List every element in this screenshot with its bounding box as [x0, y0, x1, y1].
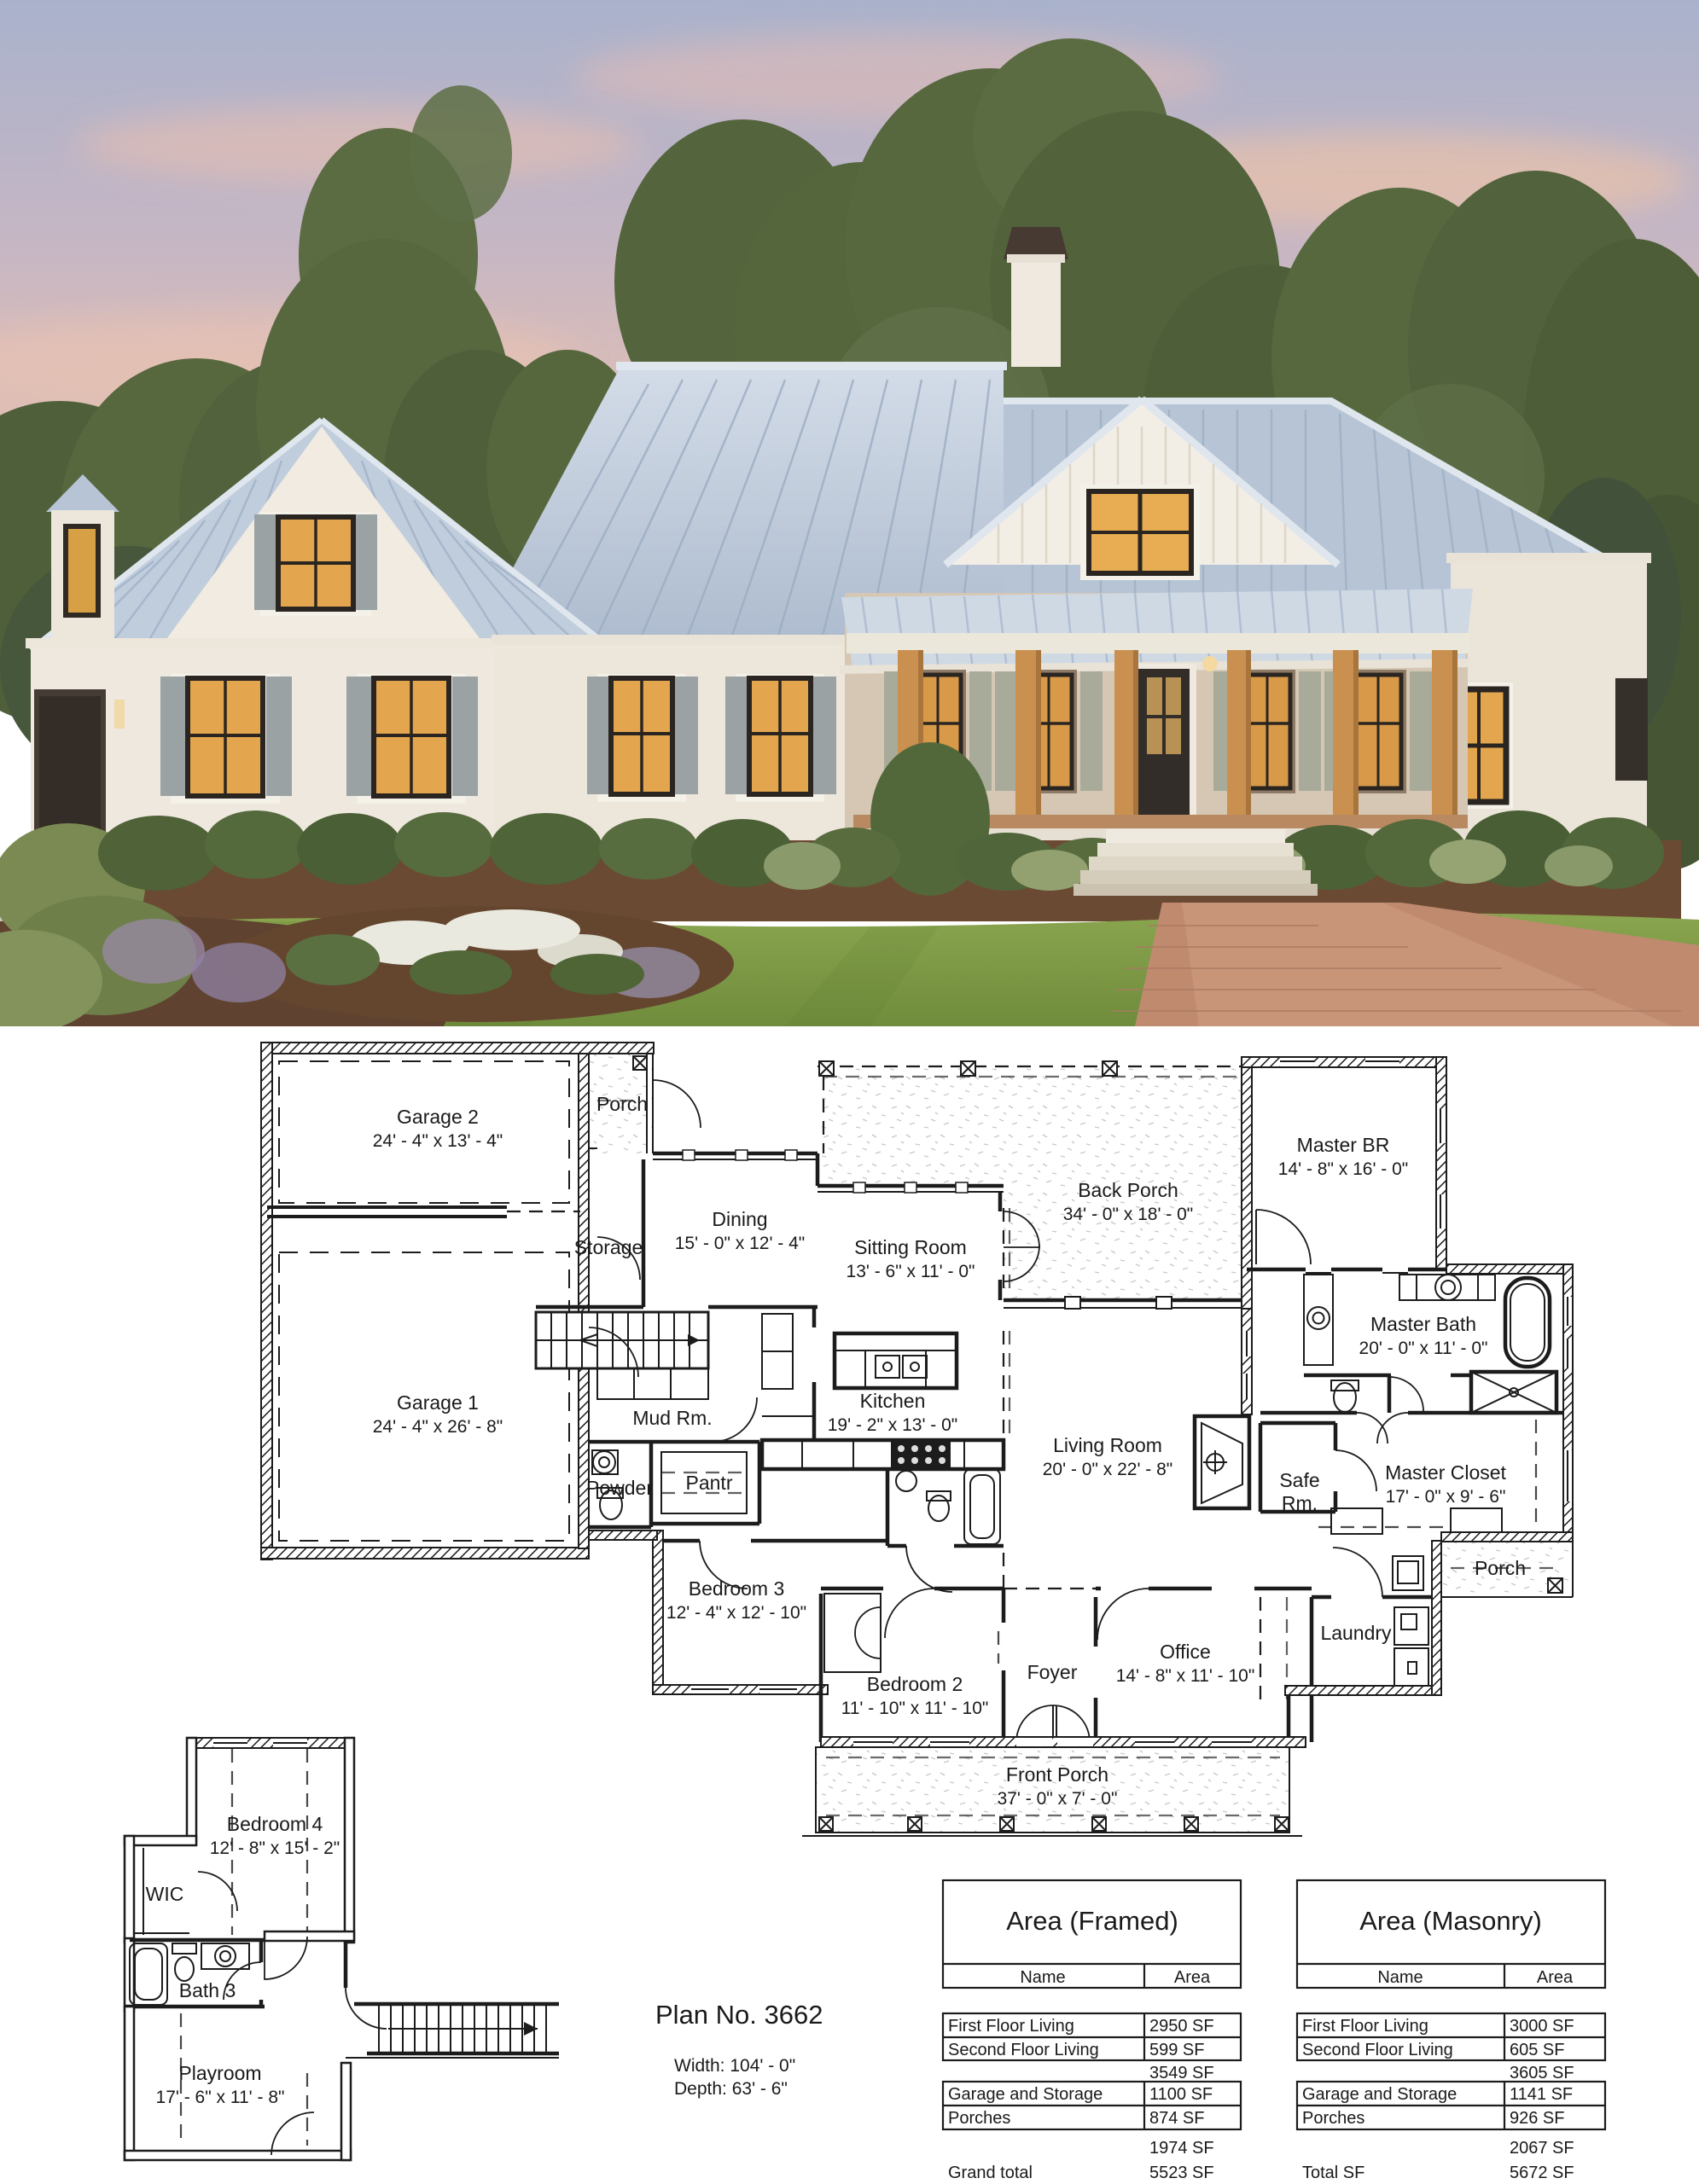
svg-text:Back Porch: Back Porch — [1078, 1179, 1178, 1201]
svg-text:24' - 4" x 26' - 8": 24' - 4" x 26' - 8" — [373, 1417, 503, 1437]
svg-text:15' - 0" x 12' - 4": 15' - 0" x 12' - 4" — [675, 1234, 806, 1253]
svg-text:1974 SF: 1974 SF — [1149, 2139, 1214, 2158]
svg-text:Bedroom 2: Bedroom 2 — [867, 1673, 963, 1695]
svg-text:Area: Area — [1174, 1968, 1211, 1987]
svg-text:Front Porch: Front Porch — [1006, 1763, 1108, 1786]
svg-text:Bedroom 4: Bedroom 4 — [227, 1813, 323, 1835]
svg-text:Kitchen: Kitchen — [860, 1390, 926, 1412]
svg-text:Master Closet: Master Closet — [1385, 1461, 1506, 1484]
svg-text:Mud Rm.: Mud Rm. — [632, 1407, 712, 1429]
svg-text:13' - 6" x 11' - 0": 13' - 6" x 11' - 0" — [847, 1262, 975, 1281]
svg-text:Second Floor Living: Second Floor Living — [948, 2041, 1099, 2059]
svg-text:17' - 6" x 11' - 8": 17' - 6" x 11' - 8" — [156, 2088, 285, 2107]
svg-text:34' - 0" x 18' - 0": 34' - 0" x 18' - 0" — [1063, 1205, 1194, 1224]
svg-text:Second Floor Living: Second Floor Living — [1302, 2041, 1453, 2059]
svg-text:Garage 1: Garage 1 — [397, 1391, 479, 1414]
svg-text:Plan No. 3662: Plan No. 3662 — [655, 2000, 823, 2030]
svg-text:14' - 8" x 16' - 0": 14' - 8" x 16' - 0" — [1278, 1159, 1409, 1179]
svg-text:Playroom: Playroom — [178, 2062, 261, 2084]
svg-text:Area (Framed): Area (Framed) — [1006, 1906, 1178, 1936]
svg-text:Garage and Storage: Garage and Storage — [1302, 2085, 1457, 2104]
svg-text:First Floor Living: First Floor Living — [948, 2017, 1074, 2036]
svg-text:17' - 0" x 9' - 6": 17' - 0" x 9' - 6" — [1386, 1487, 1506, 1507]
svg-text:5523 SF: 5523 SF — [1149, 2164, 1214, 2182]
svg-text:Garage 2: Garage 2 — [397, 1106, 479, 1128]
svg-text:12' - 8" x 15' - 2": 12' - 8" x 15' - 2" — [210, 1838, 340, 1858]
svg-text:Laundry: Laundry — [1320, 1622, 1392, 1644]
svg-text:Master BR: Master BR — [1297, 1134, 1390, 1156]
svg-text:Porches: Porches — [948, 2109, 1010, 2128]
svg-text:Rm.: Rm. — [1282, 1492, 1318, 1514]
svg-text:874 SF: 874 SF — [1149, 2109, 1204, 2128]
svg-text:Area: Area — [1537, 1968, 1574, 1987]
svg-text:12' - 4" x 12' - 10": 12' - 4" x 12' - 10" — [666, 1603, 806, 1623]
svg-text:Master Bath: Master Bath — [1370, 1313, 1476, 1335]
svg-text:1141 SF: 1141 SF — [1510, 2085, 1573, 2104]
svg-text:Garage and Storage: Garage and Storage — [948, 2085, 1103, 2104]
svg-text:11' - 10" x 11' - 10": 11' - 10" x 11' - 10" — [841, 1699, 989, 1718]
svg-text:37' - 0" x 7' - 0": 37' - 0" x 7' - 0" — [998, 1789, 1118, 1809]
svg-text:2950 SF: 2950 SF — [1149, 2017, 1214, 2036]
svg-text:3549 SF: 3549 SF — [1149, 2064, 1214, 2082]
svg-text:605 SF: 605 SF — [1510, 2041, 1564, 2059]
svg-text:Foyer: Foyer — [1027, 1661, 1078, 1683]
svg-text:Porches: Porches — [1302, 2109, 1364, 2128]
svg-text:19' - 2" x 13' - 0": 19' - 2" x 13' - 0" — [828, 1415, 958, 1435]
svg-text:Area (Masonry): Area (Masonry) — [1359, 1906, 1542, 1936]
svg-text:First Floor Living: First Floor Living — [1302, 2017, 1428, 2036]
svg-text:Porch: Porch — [596, 1093, 648, 1115]
svg-text:5672 SF: 5672 SF — [1510, 2164, 1574, 2182]
svg-text:3000 SF: 3000 SF — [1510, 2017, 1574, 2036]
svg-text:926 SF: 926 SF — [1510, 2109, 1564, 2128]
svg-text:Powder: Powder — [586, 1477, 653, 1499]
svg-text:2067 SF: 2067 SF — [1510, 2139, 1574, 2158]
svg-text:Total SF: Total SF — [1302, 2164, 1364, 2182]
svg-text:WIC: WIC — [146, 1883, 184, 1905]
svg-text:599 SF: 599 SF — [1149, 2041, 1204, 2059]
svg-text:20' - 0" x 11' - 0": 20' - 0" x 11' - 0" — [1359, 1339, 1488, 1358]
svg-text:Safe: Safe — [1279, 1469, 1319, 1491]
svg-text:24' - 4" x 13' - 4": 24' - 4" x 13' - 4" — [373, 1131, 503, 1151]
svg-text:20' - 0" x 22' - 8": 20' - 0" x 22' - 8" — [1043, 1460, 1173, 1479]
svg-text:Depth: 63' - 6": Depth: 63' - 6" — [674, 2079, 788, 2099]
svg-text:Office: Office — [1160, 1641, 1211, 1663]
svg-text:1100 SF: 1100 SF — [1149, 2085, 1213, 2104]
svg-text:Pantr: Pantr — [686, 1472, 733, 1494]
svg-text:Bedroom 3: Bedroom 3 — [689, 1577, 785, 1600]
svg-text:Name: Name — [1377, 1968, 1423, 1987]
svg-text:Width: 104' - 0": Width: 104' - 0" — [674, 2056, 795, 2076]
svg-text:14' - 8" x 11' - 10": 14' - 8" x 11' - 10" — [1116, 1666, 1255, 1686]
svg-text:Porch: Porch — [1475, 1557, 1526, 1579]
svg-text:Name: Name — [1020, 1968, 1065, 1987]
svg-text:Living Room: Living Room — [1053, 1434, 1162, 1456]
svg-text:Sitting Room: Sitting Room — [854, 1236, 967, 1258]
svg-text:Grand total: Grand total — [948, 2164, 1033, 2182]
svg-text:3605 SF: 3605 SF — [1510, 2064, 1574, 2082]
svg-text:Dining: Dining — [712, 1208, 767, 1230]
